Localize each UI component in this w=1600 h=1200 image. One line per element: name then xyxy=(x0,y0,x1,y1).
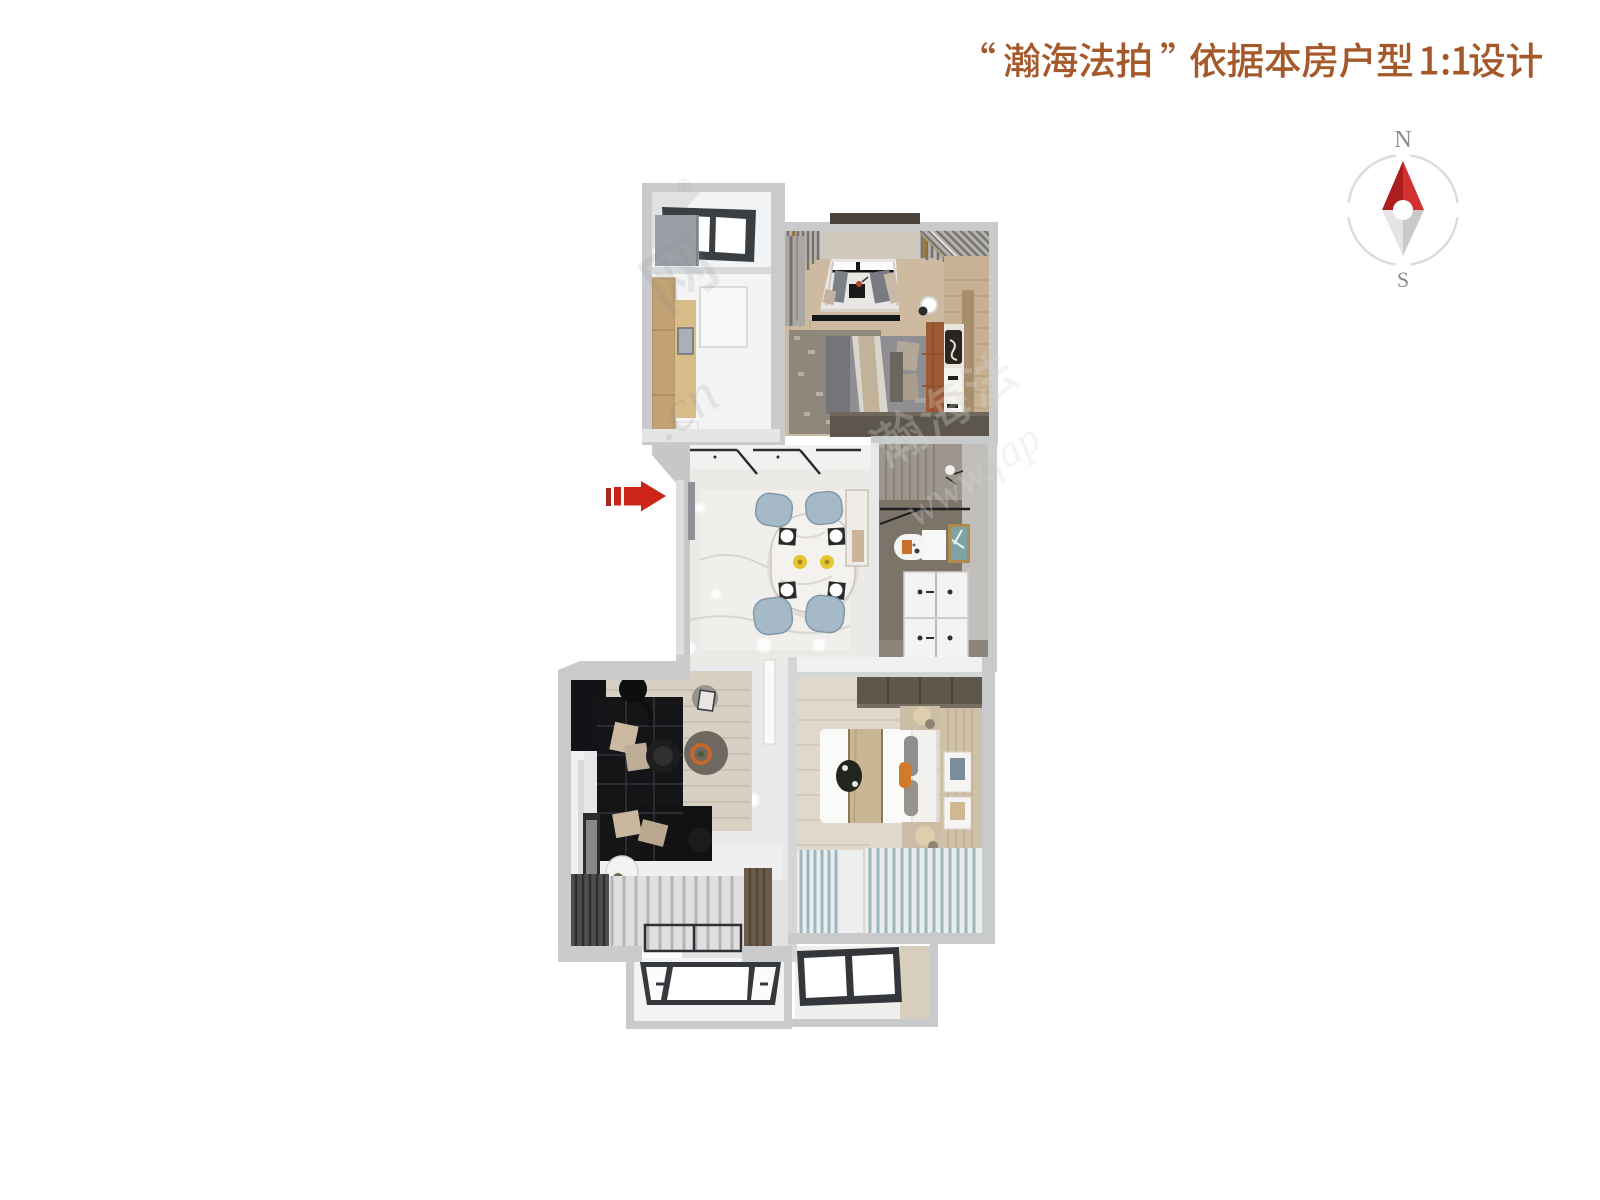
svg-text:S: S xyxy=(1397,267,1409,292)
svg-text:N: N xyxy=(1394,127,1411,153)
